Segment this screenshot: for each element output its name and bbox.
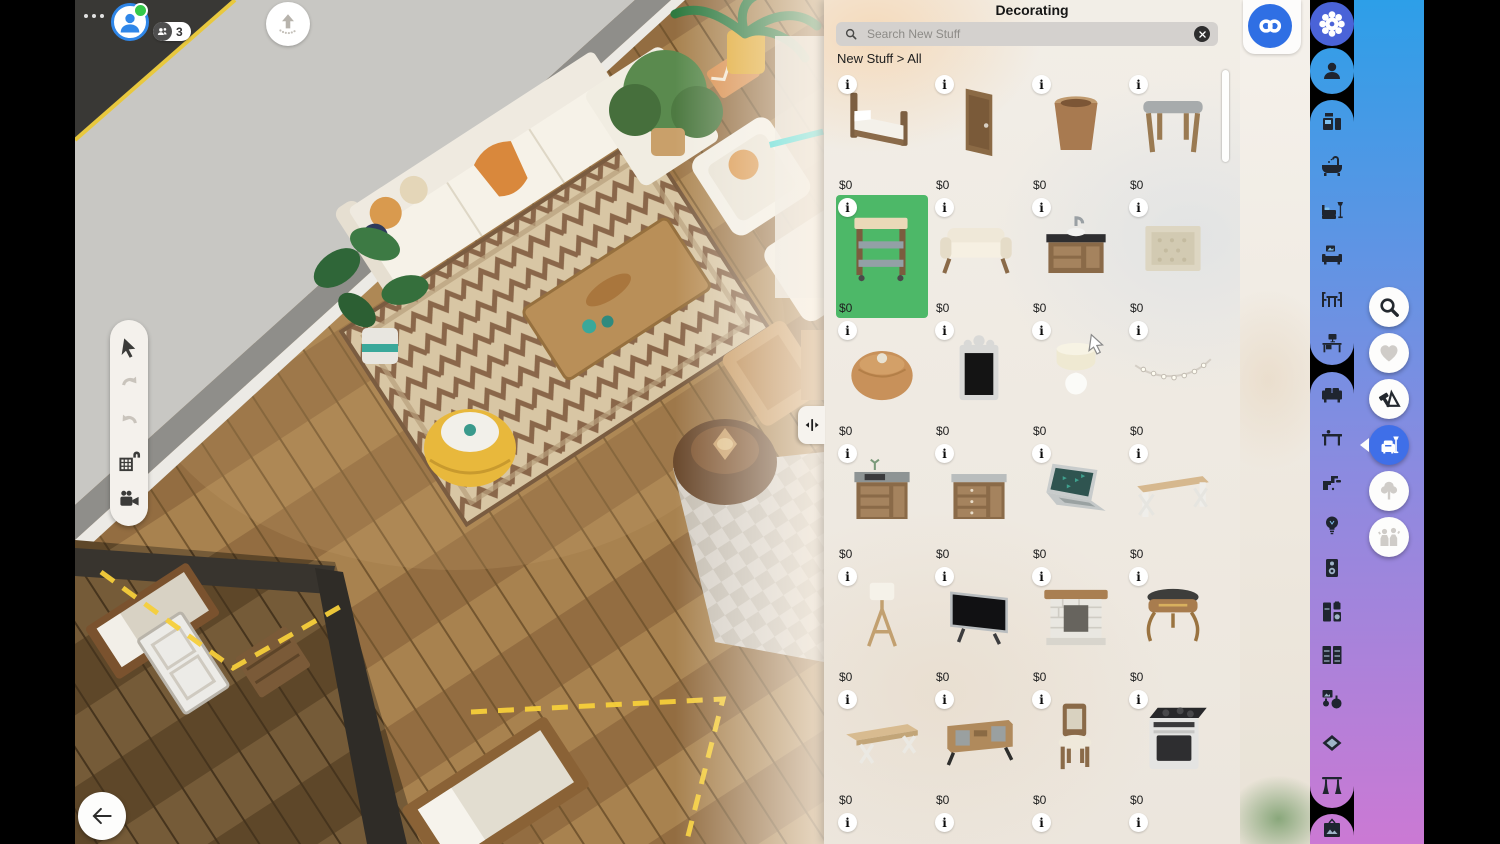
media-console-thumbnail bbox=[933, 695, 1025, 788]
panel-resize-handle[interactable] bbox=[798, 406, 825, 444]
item-info-button[interactable]: i bbox=[935, 75, 954, 94]
item-info-button[interactable]: i bbox=[838, 75, 857, 94]
item-info-button[interactable]: i bbox=[1129, 444, 1148, 463]
counter-dresser-thumbnail bbox=[933, 449, 1025, 542]
item-info-button[interactable]: i bbox=[1032, 567, 1051, 586]
gear-icon bbox=[1317, 9, 1347, 39]
floor-lamp-thumbnail bbox=[836, 572, 928, 665]
wall-art-icon bbox=[1320, 817, 1344, 841]
catalog-item-laptop[interactable]: i$0 bbox=[1030, 441, 1122, 564]
select-tool-icon bbox=[118, 336, 141, 359]
select-tool-button[interactable] bbox=[115, 333, 143, 361]
item-price: $0 bbox=[936, 670, 949, 684]
coffee-table-thumbnail bbox=[836, 695, 928, 788]
item-info-button[interactable]: i bbox=[935, 198, 954, 217]
search-catalog-icon bbox=[1377, 295, 1401, 319]
favorites-icon bbox=[1377, 341, 1401, 365]
rugs-category-button[interactable] bbox=[1317, 728, 1347, 758]
decorations-icon bbox=[1320, 687, 1344, 711]
game-viewport[interactable]: 3 bbox=[75, 0, 824, 844]
item-price: $0 bbox=[839, 178, 852, 192]
outdoor-plants-button[interactable] bbox=[1369, 471, 1409, 511]
item-info-button[interactable]: i bbox=[1032, 444, 1051, 463]
item-info-button[interactable]: i bbox=[935, 813, 954, 832]
item-info-button[interactable]: i bbox=[1129, 567, 1148, 586]
build-tools-icon bbox=[1377, 387, 1401, 411]
study-icon bbox=[1320, 331, 1344, 355]
search-bar[interactable] bbox=[836, 22, 1218, 46]
panel-title: Decorating bbox=[824, 2, 1240, 18]
catalog-item-floor-lamp[interactable]: i$0 bbox=[836, 564, 928, 687]
wall-art-category-button[interactable] bbox=[1317, 814, 1347, 844]
item-price: $0 bbox=[1033, 793, 1046, 807]
online-status-dot bbox=[133, 3, 148, 18]
category-rail bbox=[1310, 0, 1354, 844]
television-thumbnail bbox=[933, 572, 1025, 665]
item-price: $0 bbox=[1033, 301, 1046, 315]
bedroom-icon bbox=[1320, 198, 1344, 222]
household-icon bbox=[1377, 525, 1401, 549]
lighting-category-button[interactable] bbox=[1317, 510, 1347, 540]
catalog-item-counter-dresser[interactable]: i$0 bbox=[933, 441, 1025, 564]
undo-button[interactable] bbox=[115, 371, 143, 399]
item-info-button[interactable]: i bbox=[1129, 813, 1148, 832]
living-room-icon bbox=[1320, 243, 1344, 267]
item-price: $0 bbox=[936, 547, 949, 561]
item-info-button[interactable]: i bbox=[838, 567, 857, 586]
item-info-button[interactable]: i bbox=[838, 690, 857, 709]
undo-icon bbox=[118, 374, 141, 397]
build-buy-settings-button[interactable] bbox=[1310, 2, 1354, 46]
buy-furniture-icon bbox=[1377, 433, 1401, 457]
yellow-pouf-object[interactable] bbox=[424, 409, 516, 487]
bedroom-category-button[interactable] bbox=[1317, 195, 1347, 225]
rail-pill-bottom bbox=[1310, 814, 1354, 844]
search-input[interactable] bbox=[865, 26, 1194, 42]
mode-buttons bbox=[1369, 287, 1409, 563]
letterbox-left bbox=[0, 0, 75, 844]
bathroom-category-button[interactable] bbox=[1317, 151, 1347, 181]
catalog-item-antique-end-table[interactable]: i$0 bbox=[1127, 564, 1219, 687]
player-count-pill[interactable]: 3 bbox=[153, 22, 191, 41]
item-info-button[interactable]: i bbox=[1032, 75, 1051, 94]
area-rug-thumbnail bbox=[1127, 203, 1219, 296]
loveseat-thumbnail bbox=[933, 203, 1025, 296]
item-info-button[interactable]: i bbox=[838, 813, 857, 832]
catalog-item-dining-chair[interactable]: i$0 bbox=[1030, 687, 1122, 810]
curtains-category-button[interactable] bbox=[1317, 771, 1347, 801]
dining-room-icon bbox=[1320, 287, 1344, 311]
design-tool-icon bbox=[118, 450, 141, 473]
item-info-button[interactable]: i bbox=[838, 444, 857, 463]
item-price: $0 bbox=[936, 301, 949, 315]
electronics-icon bbox=[1320, 556, 1344, 580]
catalog-item-ornate-mirror[interactable]: i$0 bbox=[933, 318, 1025, 441]
catalog-item-television[interactable]: i$0 bbox=[933, 564, 1025, 687]
letterbox-right bbox=[1424, 0, 1500, 844]
scrollbar-thumb[interactable] bbox=[1222, 70, 1229, 162]
planter-pot-thumbnail bbox=[1030, 80, 1122, 173]
comfort-seating-category-button[interactable] bbox=[1317, 379, 1347, 409]
item-price: $0 bbox=[1130, 547, 1143, 561]
more-options-icon[interactable] bbox=[84, 14, 104, 18]
storage-category-button[interactable] bbox=[1317, 640, 1347, 670]
dining-room-category-button[interactable] bbox=[1317, 284, 1347, 314]
curtains-icon bbox=[1320, 774, 1344, 798]
catalog-item-pouf-ottoman[interactable]: i$0 bbox=[836, 318, 928, 441]
catalog-item-sink-counter[interactable]: i$0 bbox=[1030, 195, 1122, 318]
infinity-logo-icon bbox=[1256, 12, 1284, 40]
back-button[interactable] bbox=[78, 792, 126, 840]
string-lights-thumbnail bbox=[1127, 326, 1219, 419]
plumbing-category-button[interactable] bbox=[1317, 466, 1347, 496]
buy-furniture-button[interactable] bbox=[1369, 425, 1409, 465]
catalog-item-console-bench[interactable]: i$0 bbox=[1127, 441, 1219, 564]
item-price: $0 bbox=[1130, 301, 1143, 315]
catalog-item-planter-pot[interactable]: i$0 bbox=[1030, 72, 1122, 195]
item-price: $0 bbox=[839, 424, 852, 438]
rail-pill-top bbox=[1310, 48, 1354, 94]
decorations-category-button[interactable] bbox=[1317, 684, 1347, 714]
gallery-button[interactable] bbox=[1248, 4, 1292, 48]
catalog-item-kitchen-island-cart[interactable]: i$0 bbox=[836, 195, 928, 318]
catalog-item-partial-item-3[interactable]: i bbox=[1030, 810, 1122, 844]
catalog-item-bathroom-sink-cabinet[interactable]: i$0 bbox=[836, 441, 928, 564]
item-info-button[interactable]: i bbox=[1129, 198, 1148, 217]
catalog-item-loveseat[interactable]: i$0 bbox=[933, 195, 1025, 318]
storage-icon bbox=[1320, 643, 1344, 667]
ornate-mirror-thumbnail bbox=[933, 326, 1025, 419]
rail-pill-categories bbox=[1310, 372, 1354, 808]
upload-button[interactable] bbox=[266, 2, 310, 46]
redo-icon bbox=[118, 412, 141, 435]
brick-fireplace-thumbnail bbox=[1030, 572, 1122, 665]
item-info-button[interactable]: i bbox=[935, 690, 954, 709]
catalog-item-gas-range[interactable]: i$0 bbox=[1127, 687, 1219, 810]
item-price: $0 bbox=[839, 547, 852, 561]
item-price: $0 bbox=[839, 301, 852, 315]
item-price: $0 bbox=[1033, 547, 1046, 561]
catalog-item-partial-item-4[interactable]: i bbox=[1127, 810, 1219, 844]
catalog-panel: Decorating New Stuff > All i$0i$0i$0i$0i… bbox=[824, 0, 1240, 844]
redo-button[interactable] bbox=[115, 409, 143, 437]
plumbing-icon bbox=[1320, 469, 1344, 493]
item-price: $0 bbox=[1130, 178, 1143, 192]
dining-table-thumbnail bbox=[1127, 80, 1219, 173]
catalog-item-single-bed[interactable]: i$0 bbox=[836, 72, 928, 195]
item-info-button[interactable]: i bbox=[1032, 690, 1051, 709]
item-price: $0 bbox=[936, 178, 949, 192]
item-info-button[interactable]: i bbox=[1032, 813, 1051, 832]
item-info-button[interactable]: i bbox=[1032, 321, 1051, 340]
antique-end-table-thumbnail bbox=[1127, 572, 1219, 665]
catalog-item-string-lights[interactable]: i$0 bbox=[1127, 318, 1219, 441]
sim-mode-icon bbox=[1320, 59, 1344, 83]
catalog-item-wooden-door[interactable]: i$0 bbox=[933, 72, 1025, 195]
catalog-item-area-rug[interactable]: i$0 bbox=[1127, 195, 1219, 318]
item-price: $0 bbox=[839, 670, 852, 684]
item-info-button[interactable]: i bbox=[935, 444, 954, 463]
game-scene[interactable] bbox=[75, 0, 824, 844]
players-icon bbox=[153, 22, 172, 41]
household-button[interactable] bbox=[1369, 517, 1409, 557]
panel-gap-strip bbox=[1240, 0, 1310, 844]
living-room-category-button[interactable] bbox=[1317, 240, 1347, 270]
item-info-button[interactable]: i bbox=[1129, 321, 1148, 340]
table-lamp-thumbnail bbox=[1030, 326, 1122, 419]
build-tools-button[interactable] bbox=[1369, 379, 1409, 419]
gas-range-thumbnail bbox=[1127, 695, 1219, 788]
item-info-button[interactable]: i bbox=[1032, 198, 1051, 217]
electronics-category-button[interactable] bbox=[1317, 553, 1347, 583]
item-price: $0 bbox=[1130, 424, 1143, 438]
item-info-button[interactable]: i bbox=[838, 321, 857, 340]
upload-arrow-icon bbox=[275, 11, 301, 37]
camera-tool-icon bbox=[118, 488, 141, 511]
catalog-item-dining-table[interactable]: i$0 bbox=[1127, 72, 1219, 195]
kitchen-icon bbox=[1320, 110, 1344, 134]
console-bench-thumbnail bbox=[1127, 449, 1219, 542]
appliances-category-button[interactable] bbox=[1317, 597, 1347, 627]
item-info-button[interactable]: i bbox=[1129, 75, 1148, 94]
catalog-item-table-lamp[interactable]: i$0 bbox=[1030, 318, 1122, 441]
item-info-button[interactable]: i bbox=[935, 321, 954, 340]
app-window: 3 Decorating New Stuff > bbox=[0, 0, 1500, 844]
item-info-button[interactable]: i bbox=[838, 198, 857, 217]
item-price: $0 bbox=[936, 424, 949, 438]
player-count: 3 bbox=[176, 25, 183, 39]
sim-mode-category-button[interactable] bbox=[1317, 56, 1347, 86]
catalog-grid: i$0i$0i$0i$0i$0i$0i$0i$0i$0i$0i$0i$0i$0i… bbox=[836, 72, 1222, 844]
wooden-door-thumbnail bbox=[933, 80, 1025, 173]
dining-chair-thumbnail bbox=[1030, 695, 1122, 788]
comfort-seating-icon bbox=[1320, 382, 1344, 406]
item-price: $0 bbox=[1033, 670, 1046, 684]
item-price: $0 bbox=[839, 793, 852, 807]
rail-pill-rooms bbox=[1310, 100, 1354, 365]
item-price: $0 bbox=[936, 793, 949, 807]
bathroom-sink-cabinet-thumbnail bbox=[836, 449, 928, 542]
surfaces-icon bbox=[1320, 425, 1344, 449]
back-arrow-icon bbox=[89, 803, 115, 829]
item-price: $0 bbox=[1033, 178, 1046, 192]
pouf-ottoman-thumbnail bbox=[836, 326, 928, 419]
tool-palette bbox=[110, 320, 148, 526]
laptop-thumbnail bbox=[1030, 449, 1122, 542]
resize-horizontal-icon bbox=[803, 416, 821, 434]
appliances-icon bbox=[1320, 600, 1344, 624]
kitchen-category-button[interactable] bbox=[1317, 107, 1347, 137]
single-bed-thumbnail bbox=[836, 80, 928, 173]
item-info-button[interactable]: i bbox=[1129, 690, 1148, 709]
rugs-icon bbox=[1320, 731, 1344, 755]
design-tool-button[interactable] bbox=[115, 447, 143, 475]
camera-tool-button[interactable] bbox=[115, 485, 143, 513]
catalog-item-coffee-table[interactable]: i$0 bbox=[836, 687, 928, 810]
player-avatar[interactable] bbox=[111, 3, 149, 41]
kitchen-island-cart-thumbnail bbox=[836, 203, 928, 296]
item-price: $0 bbox=[1130, 670, 1143, 684]
study-category-button[interactable] bbox=[1317, 328, 1347, 358]
surfaces-category-button[interactable] bbox=[1317, 422, 1347, 452]
search-catalog-button[interactable] bbox=[1369, 287, 1409, 327]
outdoor-plants-icon bbox=[1377, 479, 1401, 503]
sink-counter-thumbnail bbox=[1030, 203, 1122, 296]
catalog-item-media-console[interactable]: i$0 bbox=[933, 687, 1025, 810]
favorites-button[interactable] bbox=[1369, 333, 1409, 373]
item-price: $0 bbox=[1033, 424, 1046, 438]
item-info-button[interactable]: i bbox=[935, 567, 954, 586]
catalog-item-partial-item-2[interactable]: i bbox=[933, 810, 1025, 844]
bathroom-icon bbox=[1320, 154, 1344, 178]
breadcrumb: New Stuff > All bbox=[837, 51, 922, 66]
search-icon bbox=[844, 27, 858, 41]
lighting-icon bbox=[1320, 513, 1344, 537]
item-price: $0 bbox=[1130, 793, 1143, 807]
catalog-item-partial-item-1[interactable]: i bbox=[836, 810, 928, 844]
catalog-item-brick-fireplace[interactable]: i$0 bbox=[1030, 564, 1122, 687]
clear-search-icon[interactable] bbox=[1194, 26, 1210, 42]
